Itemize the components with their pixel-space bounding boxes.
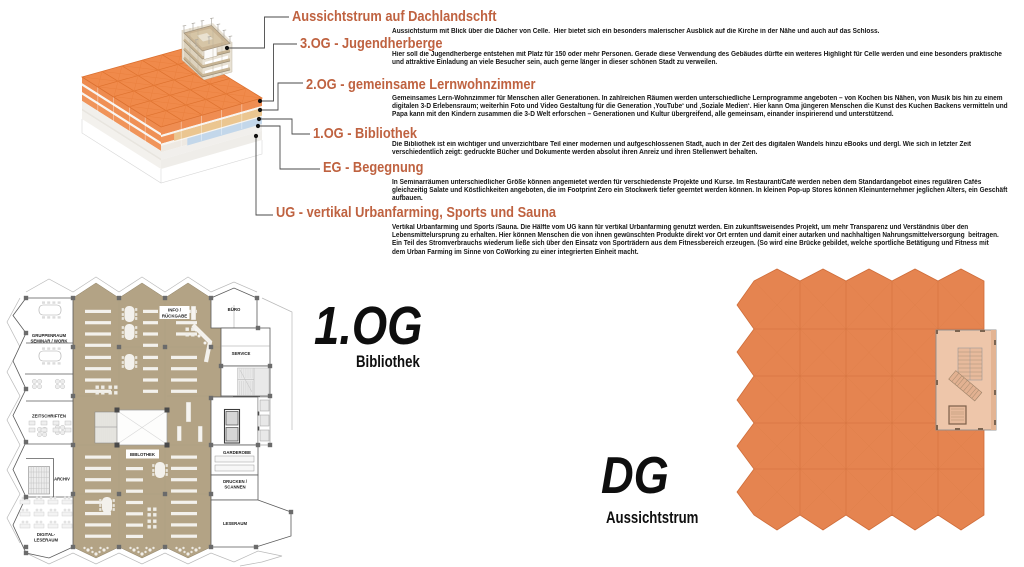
svg-text:ZEITSCHRIFTEN: ZEITSCHRIFTEN xyxy=(32,414,66,419)
svg-text:SERVICE: SERVICE xyxy=(232,351,251,356)
svg-text:LESERAUM: LESERAUM xyxy=(223,521,248,526)
svg-text:RÜCKGABE: RÜCKGABE xyxy=(162,314,187,319)
svg-text:DRUCKEN /: DRUCKEN / xyxy=(223,479,248,484)
svg-text:SCANNEN: SCANNEN xyxy=(224,485,245,490)
svg-text:GARDEROBE: GARDEROBE xyxy=(223,450,251,455)
svg-text:SEMINAR / WORK: SEMINAR / WORK xyxy=(31,339,69,344)
svg-text:GRUPPENRAUM: GRUPPENRAUM xyxy=(32,333,67,338)
svg-text:INFO /: INFO / xyxy=(168,308,182,313)
svg-text:ARCHIV: ARCHIV xyxy=(54,477,70,482)
svg-text:BIBLOTHEK: BIBLOTHEK xyxy=(130,452,156,457)
svg-text:DIGITAL-: DIGITAL- xyxy=(37,532,56,537)
svg-text:BÜRO: BÜRO xyxy=(228,307,241,312)
svg-text:LESERAUM: LESERAUM xyxy=(34,538,59,543)
